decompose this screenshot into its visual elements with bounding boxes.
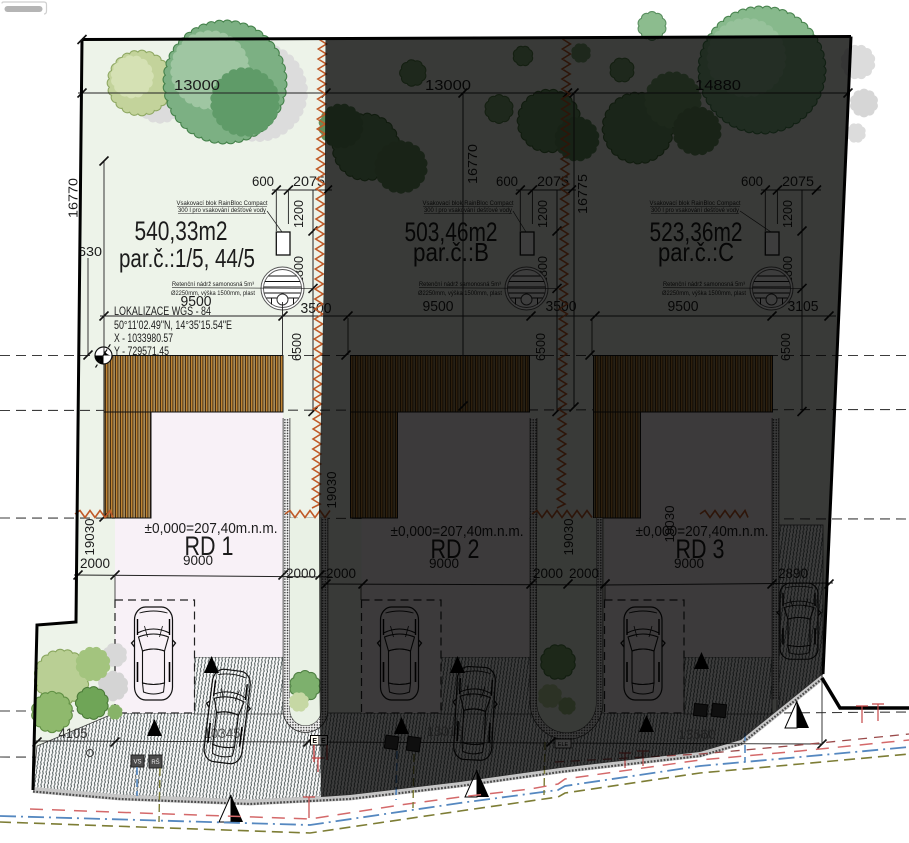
svg-text:540,33m2: 540,33m2: [135, 216, 228, 246]
svg-text:2000: 2000: [80, 555, 110, 571]
svg-text:4105: 4105: [59, 726, 88, 741]
svg-text:X - 1033980.57: X - 1033980.57: [114, 333, 173, 345]
svg-text:1200: 1200: [291, 200, 306, 228]
svg-text:Retenční nádrž samonosná 5m³: Retenční nádrž samonosná 5m³: [172, 281, 254, 288]
svg-text:19030: 19030: [82, 519, 97, 556]
svg-text:50°11'02.49"N, 14°35'15.54"E: 50°11'02.49"N, 14°35'15.54"E: [114, 320, 232, 332]
svg-text:6500: 6500: [289, 333, 304, 361]
svg-text:E: E: [312, 738, 317, 745]
svg-text:300 l pro vsakování dešťové vo: 300 l pro vsakování dešťové vody: [178, 207, 267, 214]
svg-text:2000: 2000: [286, 565, 316, 581]
svg-text:Y - 729571.45: Y - 729571.45: [114, 346, 169, 358]
svg-text:630: 630: [78, 245, 102, 259]
svg-text:RŠ: RŠ: [151, 759, 159, 766]
svg-text:13000: 13000: [174, 78, 220, 94]
svg-text:VS: VS: [133, 760, 141, 766]
svg-text:9000: 9000: [183, 552, 213, 568]
svg-text:par.č.:1/5, 44/5: par.č.:1/5, 44/5: [119, 243, 255, 273]
svg-text:LOKALIZACE WGS - 84: LOKALIZACE WGS - 84: [114, 306, 211, 318]
svg-text:Vsakovací blok RainBloc Compac: Vsakovací blok RainBloc Compact: [177, 200, 268, 207]
svg-text:600: 600: [252, 174, 274, 189]
svg-text:16770: 16770: [66, 178, 81, 218]
